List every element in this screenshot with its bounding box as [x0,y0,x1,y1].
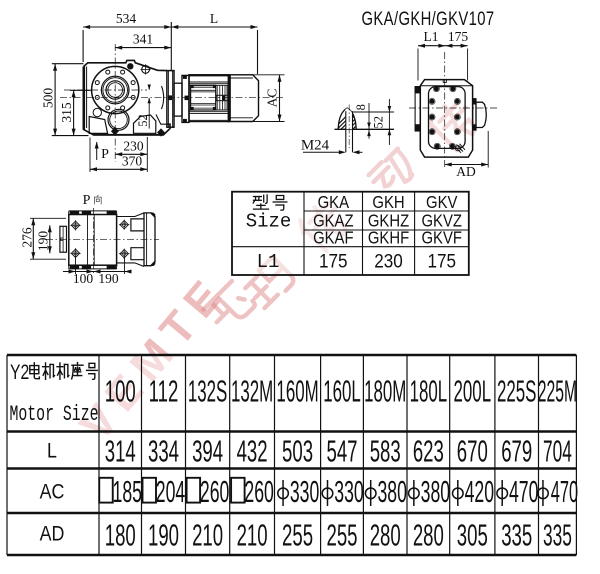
svg-text:L: L [47,439,57,463]
svg-text:L: L [210,11,218,26]
svg-text:GKA/GKH/GKV107: GKA/GKH/GKV107 [362,8,495,29]
svg-text:180L: 180L [410,374,448,409]
svg-text:190: 190 [36,231,51,252]
svg-text:Size: Size [246,211,292,233]
svg-text:GKA: GKA [318,193,350,212]
svg-text:AC: AC [265,89,280,108]
svg-text:190: 190 [148,519,179,553]
svg-text:314: 314 [105,435,136,469]
svg-text:160L: 160L [323,374,361,409]
svg-text:52: 52 [136,114,150,127]
svg-text:Motor Size: Motor Size [9,401,98,427]
svg-text:380: 380 [377,475,406,509]
svg-text:175: 175 [448,29,469,44]
svg-text:260: 260 [200,475,229,509]
svg-text:P: P [83,193,91,208]
svg-text:GKH: GKH [372,193,404,212]
svg-text:315: 315 [59,102,74,123]
svg-text:175: 175 [319,251,348,272]
svg-text:334: 334 [148,435,179,469]
svg-text:190: 190 [98,271,119,286]
svg-text:255: 255 [282,519,313,553]
svg-text:547: 547 [326,435,357,469]
svg-text:112: 112 [149,375,179,409]
svg-text:380: 380 [421,475,450,509]
svg-text:185: 185 [113,475,142,509]
svg-text:52: 52 [372,116,386,129]
svg-text:200L: 200L [454,374,492,409]
svg-text:335: 335 [543,518,572,553]
svg-text:L1: L1 [257,251,280,273]
svg-text:432: 432 [237,435,268,469]
svg-text:160M: 160M [276,374,318,409]
svg-text:210: 210 [192,519,223,553]
svg-text:670: 670 [457,435,488,469]
svg-text:180M: 180M [364,374,406,409]
svg-text:276: 276 [20,227,35,248]
svg-text:204: 204 [156,475,185,509]
svg-text:420: 420 [465,475,494,509]
svg-text:Y2: Y2 [10,360,29,384]
svg-text:210: 210 [237,519,268,553]
svg-text:500: 500 [41,88,56,109]
svg-text:260: 260 [244,475,273,509]
svg-text:175: 175 [427,251,456,272]
svg-text:394: 394 [192,435,223,469]
svg-text:AC: AC [40,480,65,504]
svg-text:335: 335 [501,519,532,553]
svg-text:679: 679 [501,435,532,469]
svg-text:225M: 225M [538,375,577,409]
svg-text:534: 534 [116,11,137,26]
svg-text:132M: 132M [231,374,273,409]
svg-text:623: 623 [413,435,444,469]
svg-text:503: 503 [282,435,313,469]
svg-text:M24: M24 [301,138,330,154]
svg-text:L1: L1 [424,29,439,44]
svg-text:280: 280 [370,519,401,553]
svg-text:180: 180 [105,519,136,553]
svg-text:330: 330 [290,475,319,509]
svg-text:GKV: GKV [426,193,458,212]
svg-text:230: 230 [374,251,403,272]
svg-text:8: 8 [354,104,368,110]
svg-text:P: P [101,147,109,162]
svg-text:GKAF: GKAF [313,228,354,247]
svg-text:255: 255 [326,519,357,553]
svg-text:280: 280 [413,519,444,553]
svg-text:230: 230 [123,139,144,154]
svg-text:100: 100 [105,375,136,409]
svg-text:305: 305 [457,519,488,553]
svg-text:583: 583 [370,435,401,469]
svg-text:330: 330 [334,475,363,509]
svg-text:470: 470 [509,475,538,509]
svg-text:GKHF: GKHF [368,228,409,247]
svg-text:370: 370 [122,154,143,169]
svg-text:132S: 132S [188,374,227,409]
svg-text:GKVF: GKVF [421,228,462,247]
svg-text:225S: 225S [497,374,536,409]
svg-text:704: 704 [543,434,572,469]
svg-text:341: 341 [133,32,153,47]
svg-text:470: 470 [551,476,578,510]
svg-text:AD: AD [456,164,476,179]
svg-text:AD: AD [40,522,65,546]
